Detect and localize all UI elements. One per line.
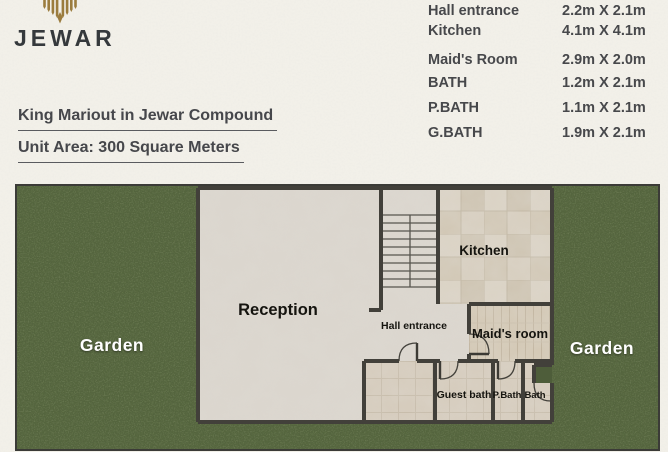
dimension-row: BATH 1.2m X 2.1m xyxy=(428,73,662,93)
room-name: Kitchen xyxy=(428,21,562,41)
dimension-row: Kitchen 4.1m X 4.1m xyxy=(428,21,662,41)
garden-left-label: Garden xyxy=(37,335,187,356)
floor-plan: Garden Garden Reception Kitchen Hall ent… xyxy=(15,184,660,451)
room-size: 4.1m X 4.1m xyxy=(562,21,662,41)
room-size: 1.1m X 2.1m xyxy=(562,98,662,118)
reception-label: Reception xyxy=(218,301,338,320)
room-size: 1.9m X 2.1m xyxy=(562,123,662,143)
brochure-page: JEWAR King Mariout in Jewar Compound Uni… xyxy=(0,0,668,452)
dimension-row: Hall entrance 2.2m X 2.1m xyxy=(428,1,662,21)
room-name: G.BATH xyxy=(428,123,562,143)
maids-room-label: Maid's room xyxy=(450,326,570,341)
unit-area-title: Unit Area: 300 Square Meters xyxy=(18,139,244,163)
dimension-row: G.BATH 1.9m X 2.1m xyxy=(428,123,662,143)
room-size: 1.2m X 2.1m xyxy=(562,73,662,93)
kitchen-label: Kitchen xyxy=(424,243,544,258)
room-name: BATH xyxy=(428,73,562,93)
jewar-logo-icon xyxy=(42,0,78,24)
dimension-row: P.BATH 1.1m X 2.1m xyxy=(428,98,662,118)
room-name: Hall entrance xyxy=(428,1,562,21)
brand-name: JEWAR xyxy=(14,25,110,52)
room-name: P.BATH xyxy=(428,98,562,118)
entry-notch xyxy=(534,365,552,383)
room-name: Maid's Room xyxy=(428,50,562,70)
room-size: 2.9m X 2.0m xyxy=(562,50,662,70)
garden-right-label: Garden xyxy=(542,338,662,359)
dimensions-table: Hall entrance 2.2m X 2.1m Kitchen 4.1m X… xyxy=(428,1,662,143)
title-block: King Mariout in Jewar Compound Unit Area… xyxy=(18,107,277,171)
bath-label: Bath xyxy=(505,390,565,401)
project-title: King Mariout in Jewar Compound xyxy=(18,107,277,131)
dimension-row: Maid's Room 2.9m X 2.0m xyxy=(428,50,662,70)
room-size: 2.2m X 2.1m xyxy=(562,1,662,21)
